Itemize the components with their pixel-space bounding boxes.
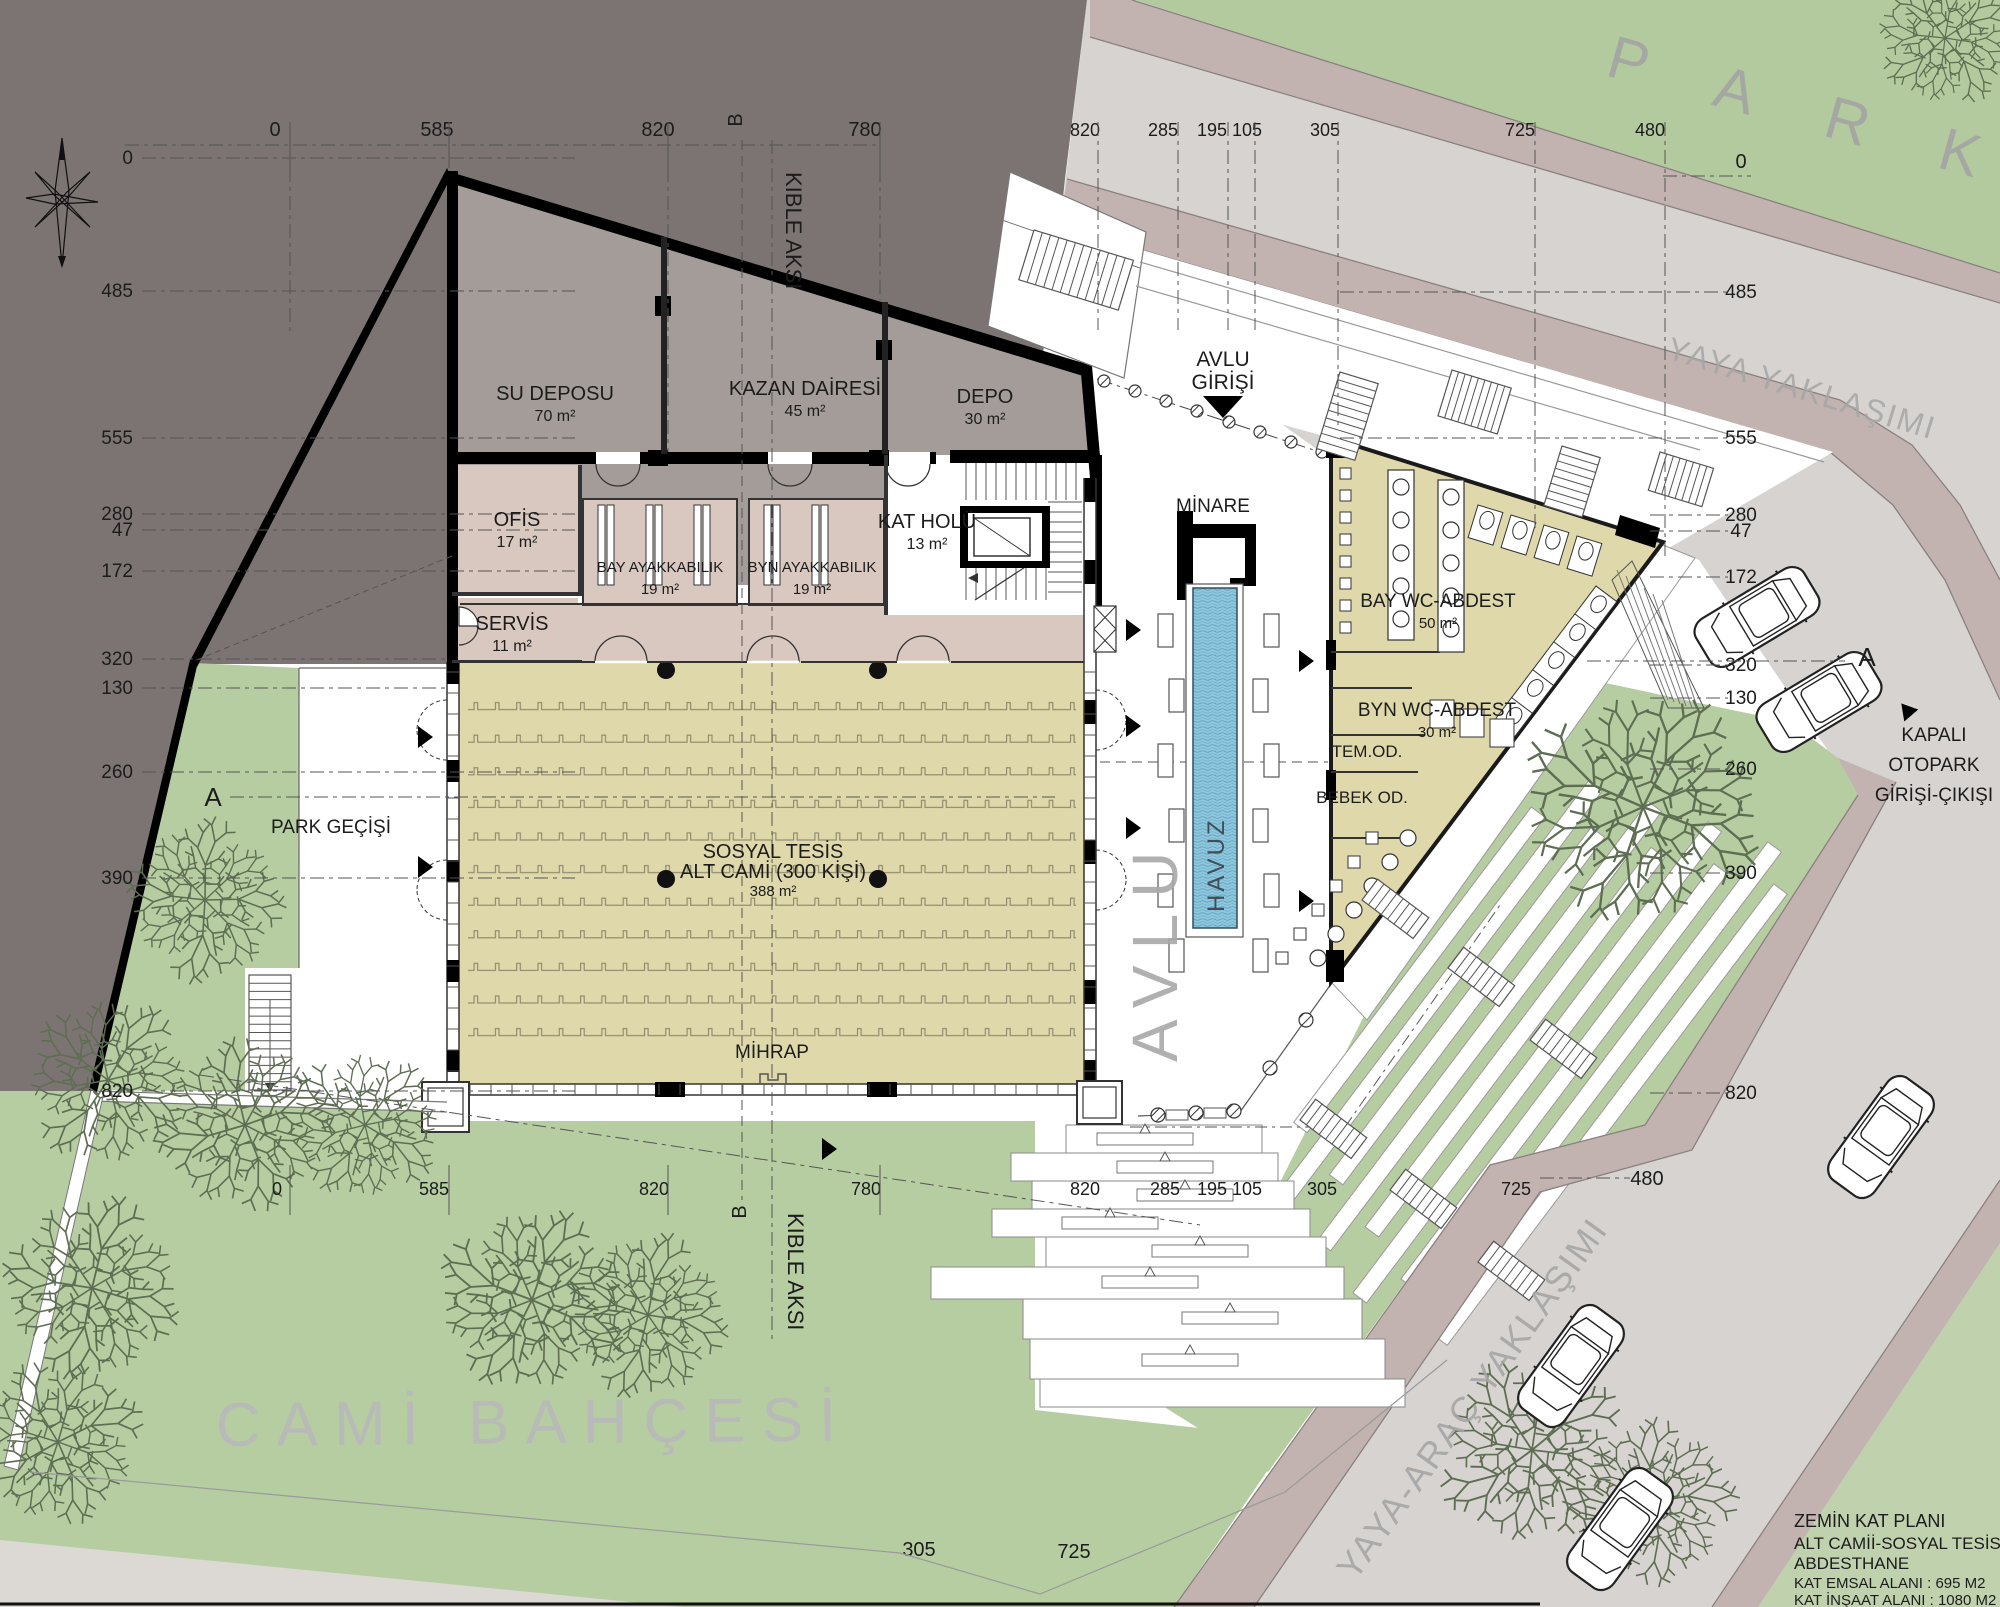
svg-text:820: 820: [1725, 1083, 1757, 1104]
svg-text:KAT EMSAL ALANI : 695 M2: KAT EMSAL ALANI : 695 M2: [1794, 1575, 1985, 1592]
svg-text:A: A: [1858, 642, 1876, 672]
svg-text:820: 820: [639, 1179, 669, 1199]
svg-text:320: 320: [1725, 655, 1757, 676]
svg-text:ALT CAMİ (300 KİŞİ): ALT CAMİ (300 KİŞİ): [680, 860, 866, 883]
svg-text:390: 390: [1725, 863, 1757, 884]
svg-text:260: 260: [1725, 759, 1757, 780]
svg-text:480: 480: [1635, 120, 1665, 140]
svg-text:130: 130: [101, 678, 133, 699]
svg-text:47: 47: [1730, 521, 1751, 542]
svg-text:13 m²: 13 m²: [907, 536, 949, 553]
svg-text:585: 585: [419, 1179, 449, 1199]
svg-text:BYN WC-ABDEST: BYN WC-ABDEST: [1358, 700, 1517, 721]
svg-text:SOSYAL TESİS: SOSYAL TESİS: [703, 840, 844, 863]
svg-text:70 m²: 70 m²: [535, 408, 577, 425]
svg-text:555: 555: [101, 428, 133, 449]
svg-text:820: 820: [101, 1081, 133, 1102]
svg-text:17 m²: 17 m²: [497, 534, 539, 551]
svg-text:388 m²: 388 m²: [750, 883, 797, 900]
svg-text:30 m²: 30 m²: [1418, 724, 1456, 741]
svg-text:BEBEK OD.: BEBEK OD.: [1316, 788, 1408, 807]
svg-text:390: 390: [101, 868, 133, 889]
svg-text:B: B: [725, 113, 747, 126]
svg-text:SU DEPOSU: SU DEPOSU: [496, 383, 614, 405]
svg-text:725: 725: [1057, 1541, 1090, 1563]
svg-text:A: A: [204, 782, 222, 812]
svg-text:MİNARE: MİNARE: [1176, 496, 1250, 517]
svg-text:KIBLE AKSI: KIBLE AKSI: [783, 1213, 808, 1330]
svg-text:KAT HOLÜ: KAT HOLÜ: [878, 511, 976, 533]
svg-text:260: 260: [101, 762, 133, 783]
svg-text:555: 555: [1725, 428, 1757, 449]
svg-text:CAMİ BAHÇESİ: CAMİ BAHÇESİ: [216, 1385, 853, 1460]
svg-text:30 m²: 30 m²: [965, 411, 1007, 428]
svg-text:OFİS: OFİS: [494, 508, 541, 531]
svg-text:OTOPARK: OTOPARK: [1888, 755, 1979, 776]
svg-text:GİRİŞİ-ÇIKIŞI: GİRİŞİ-ÇIKIŞI: [1875, 785, 1993, 806]
svg-text:0: 0: [1735, 151, 1746, 173]
svg-text:SERVİS: SERVİS: [476, 612, 549, 635]
svg-text:725: 725: [1501, 1179, 1531, 1199]
svg-text:725: 725: [1505, 120, 1535, 140]
svg-text:820: 820: [1070, 1179, 1100, 1199]
svg-text:47: 47: [112, 520, 133, 541]
svg-text:0: 0: [272, 1179, 282, 1199]
svg-text:ALT CAMİİ-SOSYAL TESİS: ALT CAMİİ-SOSYAL TESİS: [1794, 1534, 2000, 1553]
svg-text:305: 305: [1307, 1179, 1337, 1199]
svg-text:GİRİŞİ: GİRİŞİ: [1191, 371, 1254, 394]
svg-text:130: 130: [1725, 688, 1757, 709]
svg-text:172: 172: [101, 561, 133, 582]
svg-text:195: 195: [1197, 120, 1227, 140]
svg-text:19 m²: 19 m²: [793, 581, 831, 598]
svg-text:KAZAN DAİRESİ: KAZAN DAİRESİ: [729, 377, 881, 400]
svg-text:11 m²: 11 m²: [492, 638, 532, 655]
svg-text:TEM.OD.: TEM.OD.: [1332, 742, 1403, 761]
svg-text:305: 305: [1310, 120, 1340, 140]
svg-text:305: 305: [902, 1539, 935, 1561]
svg-text:50 m²: 50 m²: [1419, 615, 1457, 632]
svg-text:820: 820: [1070, 120, 1100, 140]
svg-text:AVLU: AVLU: [1196, 348, 1249, 371]
svg-text:ZEMİN KAT PLANI: ZEMİN KAT PLANI: [1794, 1511, 1945, 1531]
svg-text:485: 485: [101, 281, 133, 302]
svg-text:KAPALI: KAPALI: [1901, 725, 1966, 746]
svg-text:485: 485: [1725, 282, 1757, 303]
svg-text:320: 320: [101, 649, 133, 670]
svg-text:0: 0: [122, 148, 133, 169]
svg-text:BAY WC-ABDEST: BAY WC-ABDEST: [1360, 591, 1516, 612]
svg-text:105: 105: [1232, 120, 1262, 140]
svg-text:780: 780: [851, 1179, 881, 1199]
svg-text:PARK GEÇİŞİ: PARK GEÇİŞİ: [271, 817, 391, 838]
svg-text:AVLU: AVLU: [1119, 836, 1191, 1062]
svg-text:BYN AYAKKABILIK: BYN AYAKKABILIK: [748, 559, 877, 576]
svg-text:780: 780: [848, 119, 881, 141]
svg-text:HAVUZ: HAVUZ: [1203, 817, 1230, 912]
svg-text:0: 0: [269, 119, 280, 141]
svg-text:DEPO: DEPO: [957, 386, 1014, 408]
svg-text:B: B: [729, 1205, 751, 1218]
svg-text:MİHRAP: MİHRAP: [735, 1042, 809, 1063]
svg-text:285: 285: [1150, 1179, 1180, 1199]
svg-text:ABDESTHANE: ABDESTHANE: [1794, 1554, 1909, 1573]
svg-text:KAT İNŞAAT ALANI : 1080 M2: KAT İNŞAAT ALANI : 1080 M2: [1794, 1591, 1996, 1607]
svg-text:480: 480: [1630, 1168, 1663, 1190]
svg-text:172: 172: [1725, 567, 1757, 588]
svg-text:45 m²: 45 m²: [785, 403, 827, 420]
svg-text:195: 195: [1197, 1179, 1227, 1199]
svg-text:KIBLE AKSI: KIBLE AKSI: [781, 172, 806, 289]
svg-text:105: 105: [1232, 1179, 1262, 1199]
svg-text:BAY AYAKKABILIK: BAY AYAKKABILIK: [597, 559, 723, 576]
svg-text:19 m²: 19 m²: [641, 581, 679, 598]
svg-text:820: 820: [641, 119, 674, 141]
svg-text:285: 285: [1148, 120, 1178, 140]
